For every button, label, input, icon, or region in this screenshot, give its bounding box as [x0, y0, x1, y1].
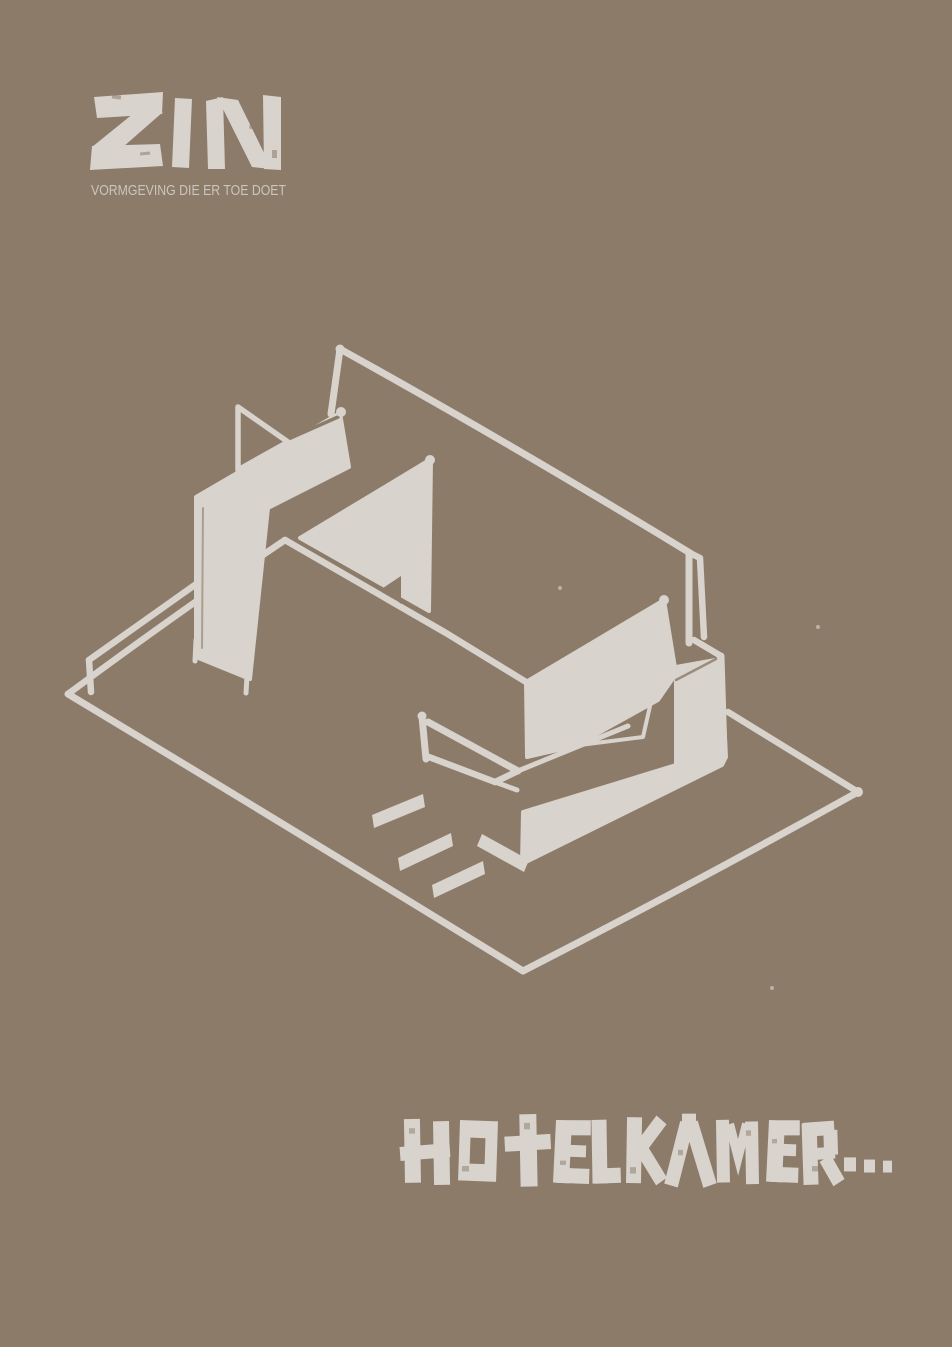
svg-text:VORMGEVING DIE ER TOE DOET: VORMGEVING DIE ER TOE DOET — [91, 182, 286, 199]
